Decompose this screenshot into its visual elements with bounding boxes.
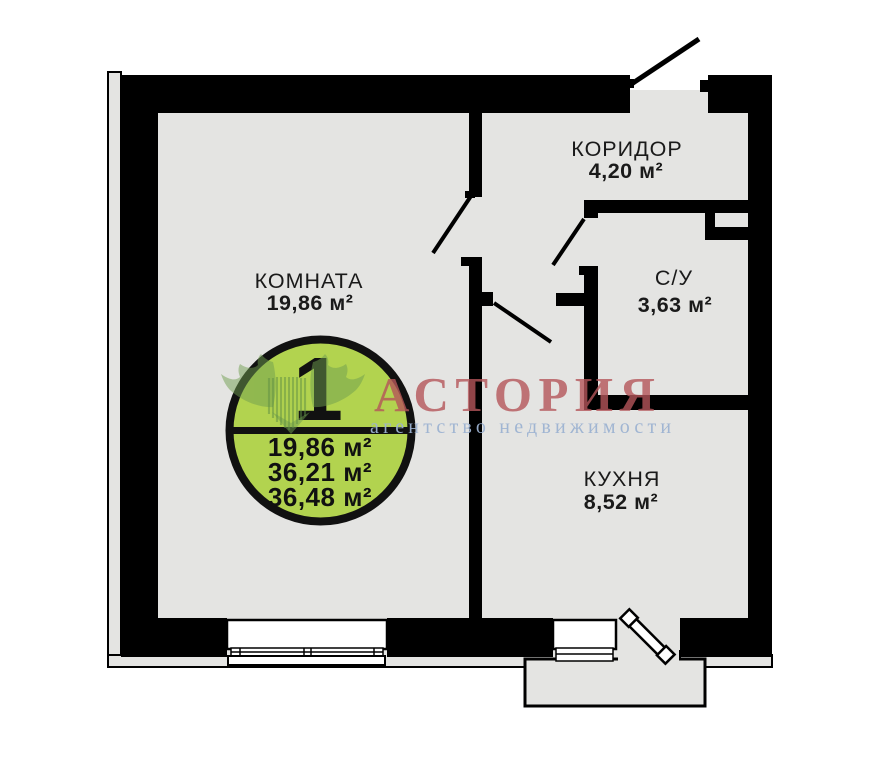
wall-divider-top bbox=[469, 113, 482, 197]
window-kitchen-frame bbox=[553, 620, 616, 649]
wall-left bbox=[121, 75, 158, 657]
floor-plan-page: КОМНАТА 19,86 м² КОРИДОР 4,20 м² С/У 3,6… bbox=[0, 0, 878, 777]
wall-bottom-2 bbox=[387, 618, 553, 657]
wall-kitchen-top bbox=[556, 293, 597, 306]
wall-top-left bbox=[121, 75, 630, 113]
window-room-sill bbox=[228, 656, 385, 665]
window-room-frame bbox=[227, 620, 387, 649]
watermark-tagline: агентство недвижимости bbox=[370, 416, 675, 438]
room-label-kuhnya: КУХНЯ bbox=[584, 467, 661, 491]
room-label-koridor: КОРИДОР bbox=[571, 137, 682, 161]
room-label-komnata: КОМНАТА bbox=[255, 269, 364, 293]
room-area-komnata: 19,86 м² bbox=[267, 291, 354, 315]
balcony bbox=[525, 659, 705, 706]
wall-divider-bottom bbox=[469, 260, 482, 620]
room-area-su: 3,63 м² bbox=[638, 293, 712, 317]
wall-corridor-bath bbox=[584, 200, 748, 213]
floor-plan-drawing: КОМНАТА 19,86 м² КОРИДОР 4,20 м² С/У 3,6… bbox=[0, 0, 878, 777]
kitchen-door-jamb-left bbox=[482, 292, 493, 306]
watermark-brand: АСТОРИЯ bbox=[374, 367, 661, 422]
room-label-su: С/У bbox=[655, 266, 693, 290]
bath-door-jamb-top bbox=[584, 200, 598, 218]
room-area-koridor: 4,20 м² bbox=[589, 159, 663, 183]
vent-shaft-wall-h bbox=[705, 227, 748, 240]
wall-right bbox=[748, 75, 772, 657]
window-room bbox=[227, 620, 387, 665]
wall-bottom-3 bbox=[680, 618, 772, 657]
wall-bottom-1 bbox=[121, 618, 227, 657]
outer-contour-strip-left bbox=[108, 72, 121, 667]
entry-jamb-right bbox=[700, 80, 712, 92]
room-area-kuhnya: 8,52 м² bbox=[584, 490, 658, 514]
badge-area-total: 36,48 м² bbox=[268, 482, 372, 512]
apartment-floor bbox=[121, 75, 772, 657]
window-kitchen bbox=[553, 620, 616, 661]
